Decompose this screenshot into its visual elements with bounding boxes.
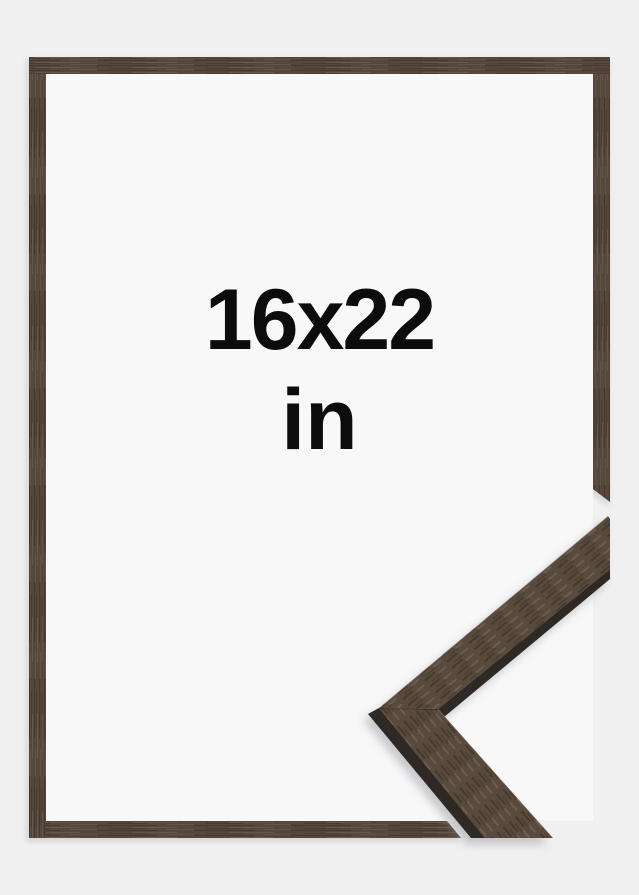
product-image: 16x22 in (0, 0, 639, 895)
frame-opening (46, 74, 593, 821)
frame-graphic (0, 0, 639, 895)
frame-right-border (593, 74, 610, 502)
frame-top-border (29, 57, 610, 74)
frame-left-border (29, 74, 46, 838)
frame-bottom-border (46, 821, 461, 838)
